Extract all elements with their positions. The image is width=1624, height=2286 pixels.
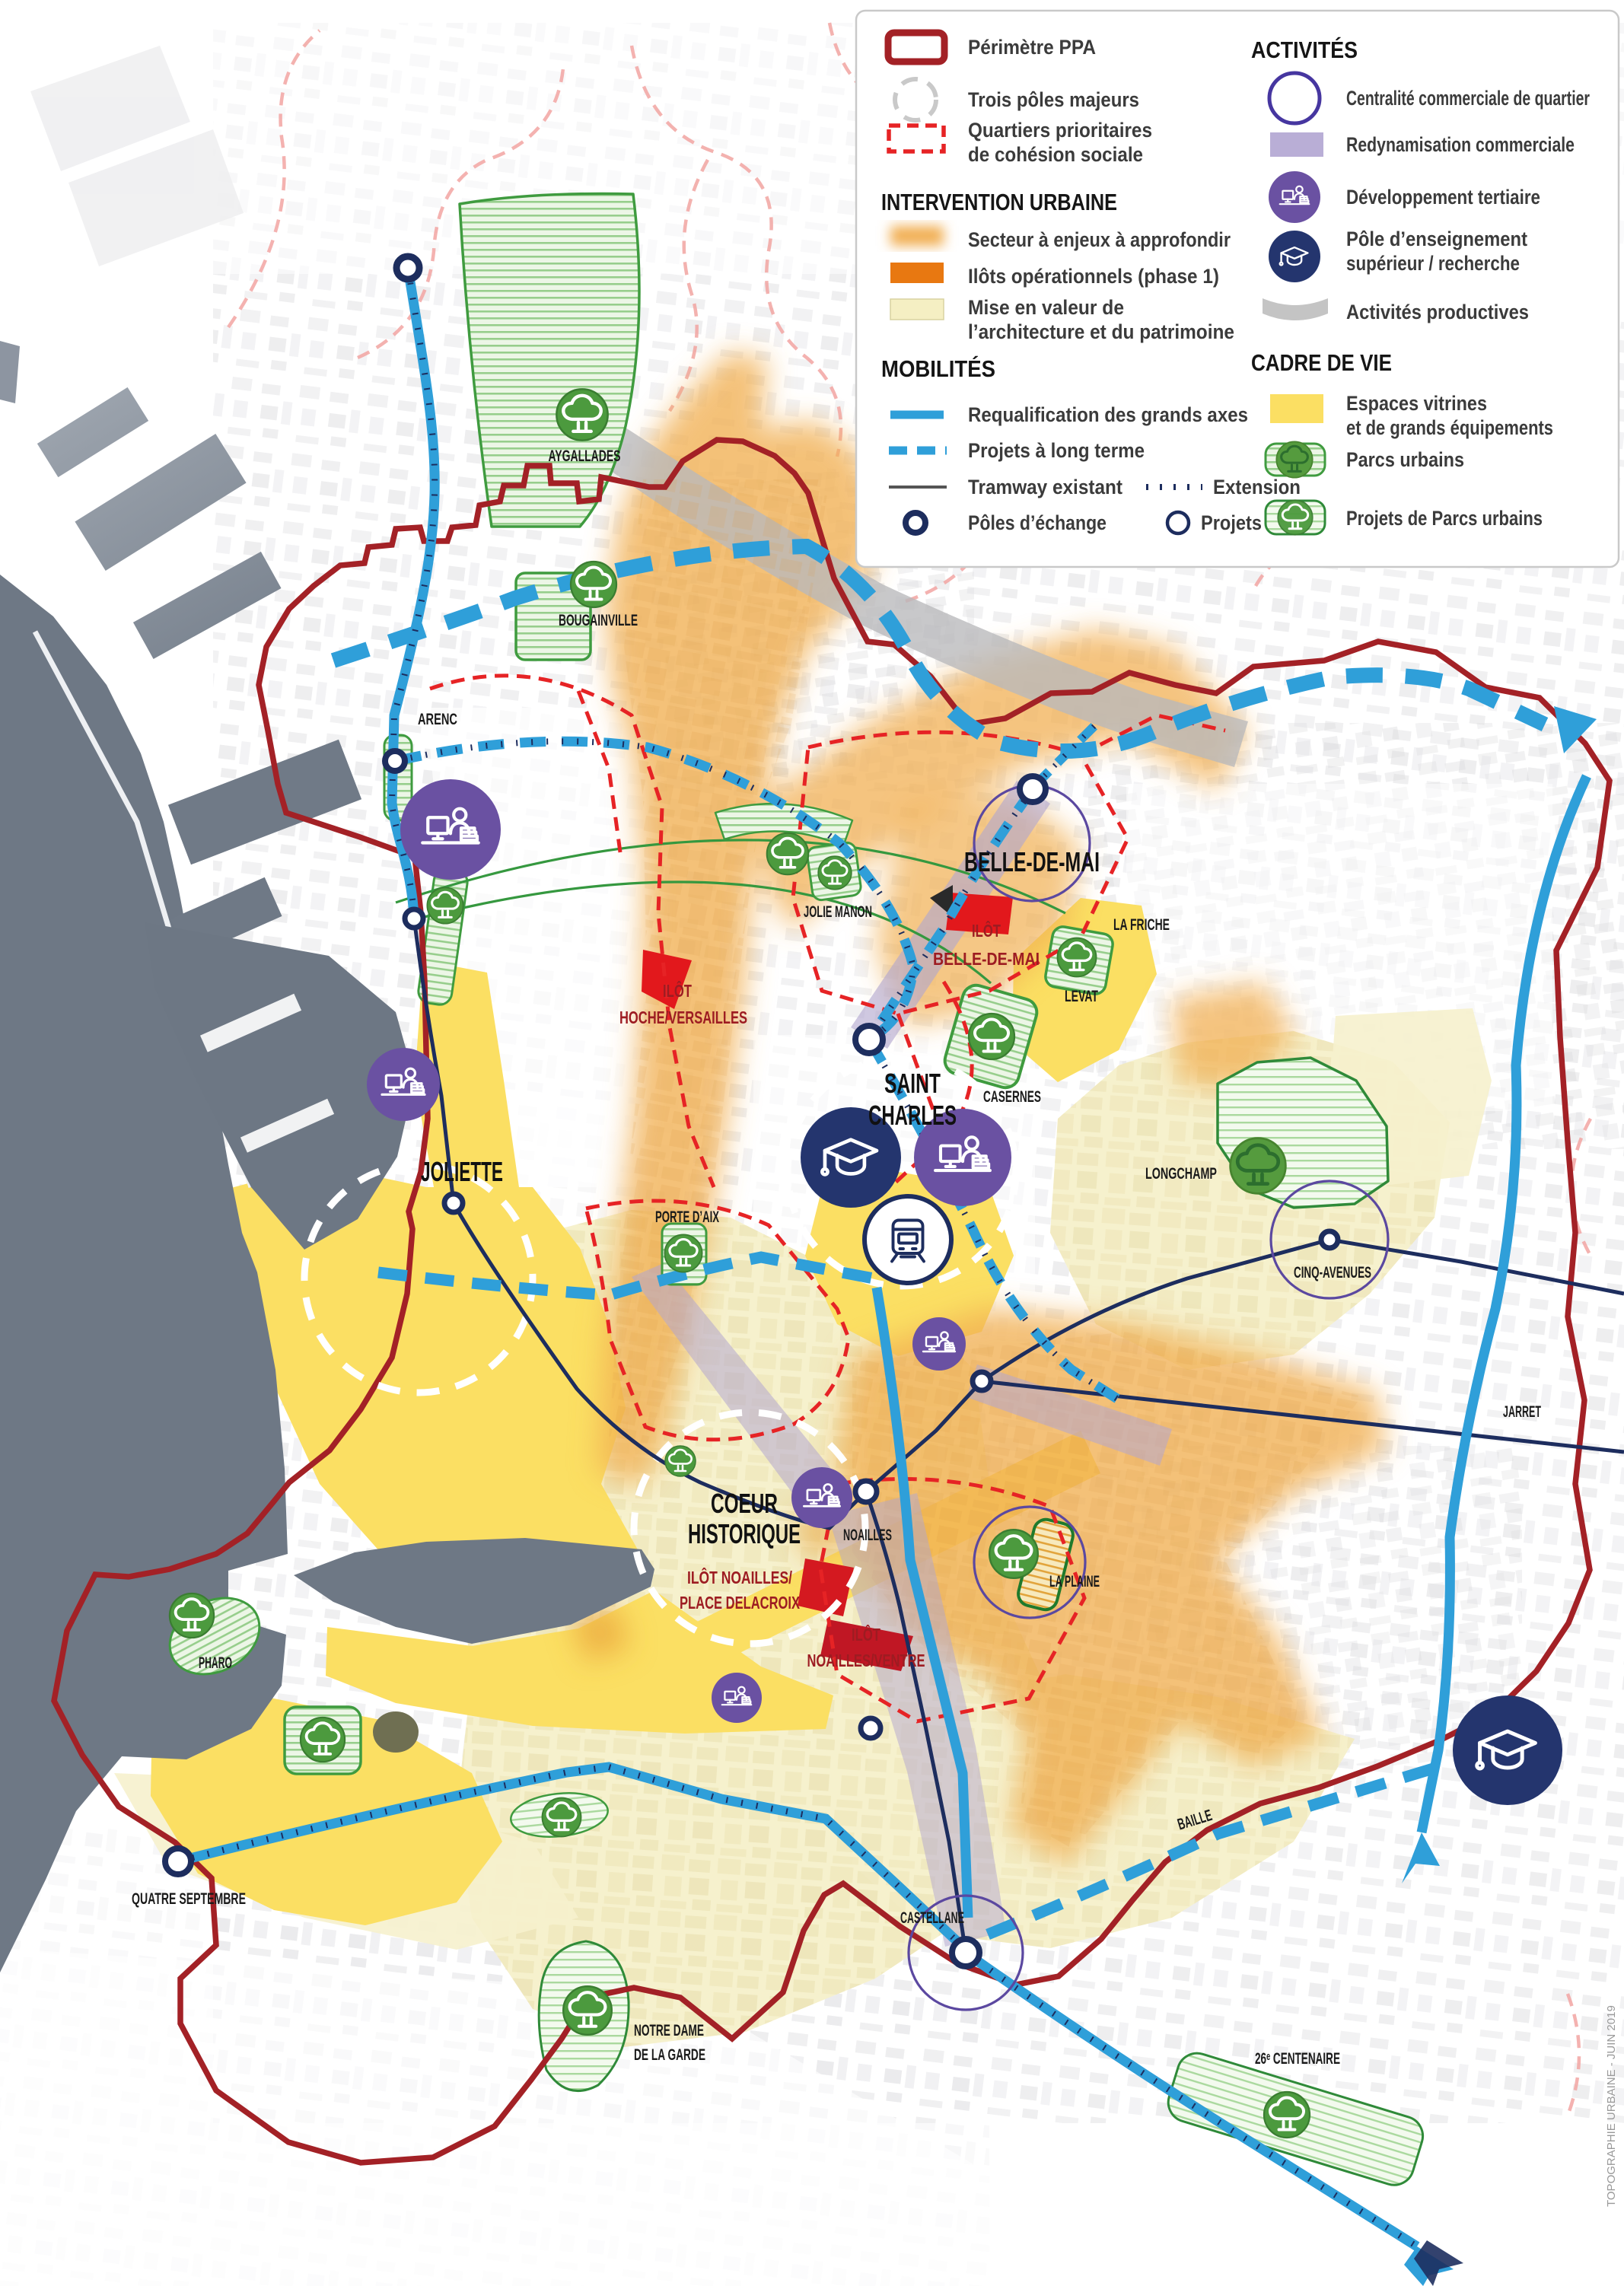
svg-text:LONGCHAMP: LONGCHAMP	[1145, 1165, 1217, 1183]
svg-text:Projets: Projets	[1201, 511, 1262, 534]
svg-text:Pôles d’échange: Pôles d’échange	[968, 511, 1107, 534]
svg-text:Centralité commerciale de quar: Centralité commerciale de quartier	[1346, 87, 1590, 110]
svg-text:INTERVENTION URBAINE: INTERVENTION URBAINE	[881, 189, 1117, 215]
svg-text:ACTIVITÉS: ACTIVITÉS	[1251, 37, 1358, 63]
svg-text:HOCHE/VERSAILLES: HOCHE/VERSAILLES	[619, 1008, 747, 1027]
svg-text:CINQ-AVENUES: CINQ-AVENUES	[1294, 1264, 1371, 1281]
svg-text:NOAILLES/VENTRE: NOAILLES/VENTRE	[807, 1651, 925, 1670]
svg-text:de cohésion sociale: de cohésion sociale	[968, 143, 1143, 166]
svg-text:l’architecture et du patrimoin: l’architecture et du patrimoine	[968, 320, 1234, 343]
svg-text:HISTORIQUE: HISTORIQUE	[688, 1518, 801, 1549]
svg-text:ILÔT: ILÔT	[663, 980, 692, 1001]
svg-text:LA PLAINE: LA PLAINE	[1049, 1573, 1100, 1590]
svg-text:QUATRE SEPTEMBRE: QUATRE SEPTEMBRE	[132, 1890, 246, 1908]
svg-text:Ilôts opérationnels (phase 1): Ilôts opérationnels (phase 1)	[968, 265, 1219, 288]
svg-text:CHARLES: CHARLES	[868, 1100, 957, 1131]
svg-text:JOLIETTE: JOLIETTE	[421, 1156, 503, 1187]
svg-text:supérieur / recherche: supérieur / recherche	[1346, 252, 1520, 275]
svg-text:ILÔT: ILÔT	[852, 1624, 880, 1644]
svg-text:SAINT: SAINT	[884, 1068, 941, 1099]
svg-text:Développement tertiaire: Développement tertiaire	[1346, 186, 1540, 209]
svg-text:TOPOGRAPHIE URBAINE - JUIN 201: TOPOGRAPHIE URBAINE - JUIN 2019	[1605, 2005, 1618, 2207]
svg-text:Espaces vitrines: Espaces vitrines	[1346, 392, 1487, 415]
svg-text:Mise en valeur de: Mise en valeur de	[968, 296, 1124, 319]
svg-text:BELLE-DE-MAI: BELLE-DE-MAI	[933, 949, 1040, 969]
svg-text:COEUR: COEUR	[711, 1488, 778, 1519]
svg-text:26ᵉ CENTENAIRE: 26ᵉ CENTENAIRE	[1255, 2050, 1340, 2068]
svg-text:PHARO: PHARO	[199, 1654, 232, 1672]
svg-text:Parcs urbains: Parcs urbains	[1346, 448, 1464, 471]
svg-text:AYGALLADES: AYGALLADES	[549, 447, 621, 465]
svg-text:Projets à long terme: Projets à long terme	[968, 439, 1145, 462]
svg-text:CADRE DE VIE: CADRE DE VIE	[1251, 349, 1392, 376]
svg-text:ARENC: ARENC	[418, 711, 457, 728]
svg-text:ILÔT: ILÔT	[972, 920, 1001, 941]
svg-text:et de grands équipements: et de grands équipements	[1346, 416, 1553, 439]
svg-text:Redynamisation commerciale: Redynamisation commerciale	[1346, 133, 1575, 156]
svg-text:JOLIE MANON: JOLIE MANON	[804, 903, 872, 921]
svg-text:NOTRE DAME: NOTRE DAME	[634, 2022, 704, 2039]
svg-text:Trois pôles majeurs: Trois pôles majeurs	[968, 88, 1139, 111]
svg-text:BOUGAINVILLE: BOUGAINVILLE	[559, 612, 638, 629]
svg-text:Pôle d’enseignement: Pôle d’enseignement	[1346, 228, 1527, 250]
svg-text:PLACE DELACROIX: PLACE DELACROIX	[680, 1593, 800, 1613]
svg-text:CASERNES: CASERNES	[983, 1088, 1041, 1106]
svg-text:LA FRICHE: LA FRICHE	[1113, 916, 1170, 934]
svg-text:LEVAT: LEVAT	[1065, 988, 1098, 1005]
svg-text:Projets de Parcs urbains: Projets de Parcs urbains	[1346, 507, 1543, 530]
svg-text:DE LA GARDE: DE LA GARDE	[634, 2046, 705, 2064]
svg-text:Quartiers prioritaires: Quartiers prioritaires	[968, 119, 1152, 142]
svg-text:Activités productives: Activités productives	[1346, 301, 1529, 323]
svg-text:NOAILLES: NOAILLES	[843, 1527, 892, 1544]
svg-text:Extension: Extension	[1213, 476, 1301, 498]
svg-text:Périmètre PPA: Périmètre PPA	[968, 36, 1096, 59]
svg-text:PORTE D’AIX: PORTE D’AIX	[655, 1208, 719, 1226]
svg-text:CASTELLANE: CASTELLANE	[900, 1909, 964, 1927]
svg-text:MOBILITÉS: MOBILITÉS	[881, 355, 995, 382]
svg-text:Tramway existant: Tramway existant	[968, 476, 1122, 498]
svg-text:BELLE-DE-MAI: BELLE-DE-MAI	[964, 846, 1100, 877]
svg-text:Requalification des grands axe: Requalification des grands axes	[968, 403, 1248, 426]
svg-text:JARRET: JARRET	[1503, 1403, 1541, 1421]
svg-text:ILÔT NOAILLES/: ILÔT NOAILLES/	[687, 1567, 792, 1587]
svg-text:Secteur à enjeux à approfondir: Secteur à enjeux à approfondir	[968, 228, 1231, 251]
